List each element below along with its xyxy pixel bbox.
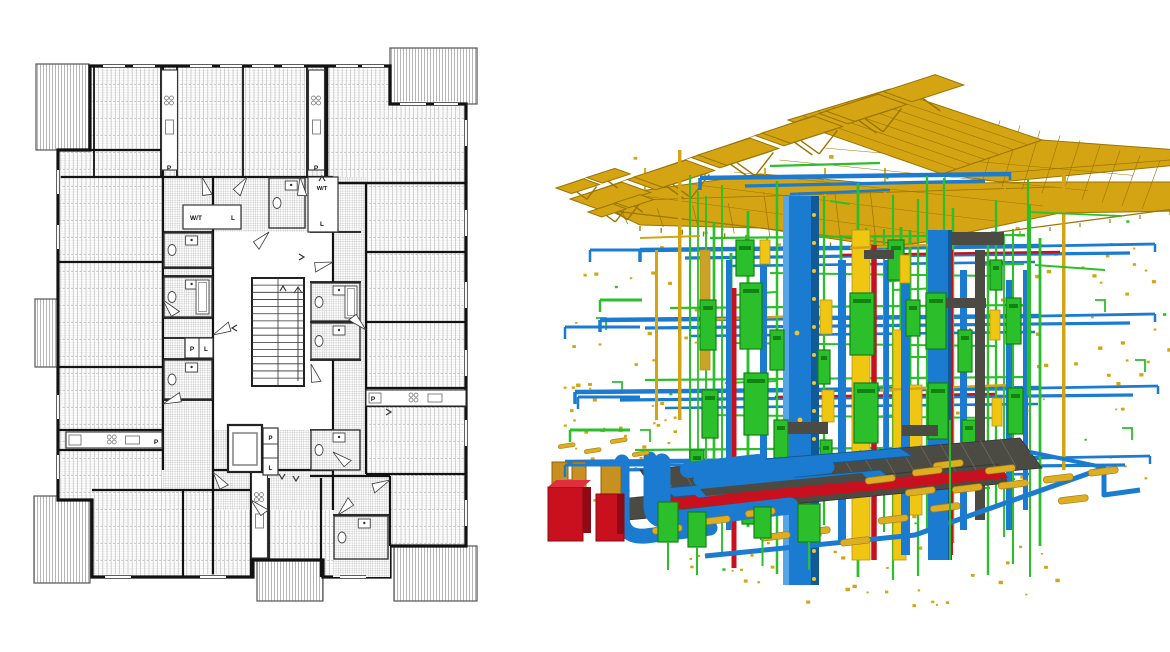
svg-text:P: P <box>268 436 272 442</box>
svg-text:P: P <box>190 346 195 353</box>
svg-text:L: L <box>204 346 208 353</box>
svg-text:L: L <box>269 466 273 472</box>
svg-text:L: L <box>320 221 324 228</box>
svg-text:P: P <box>371 396 376 403</box>
svg-text:P: P <box>154 439 159 446</box>
svg-text:P: P <box>314 165 319 172</box>
svg-text:W/T: W/T <box>190 215 202 222</box>
svg-text:L: L <box>231 215 235 222</box>
svg-text:W/T: W/T <box>317 186 328 192</box>
svg-text:P: P <box>167 165 172 172</box>
